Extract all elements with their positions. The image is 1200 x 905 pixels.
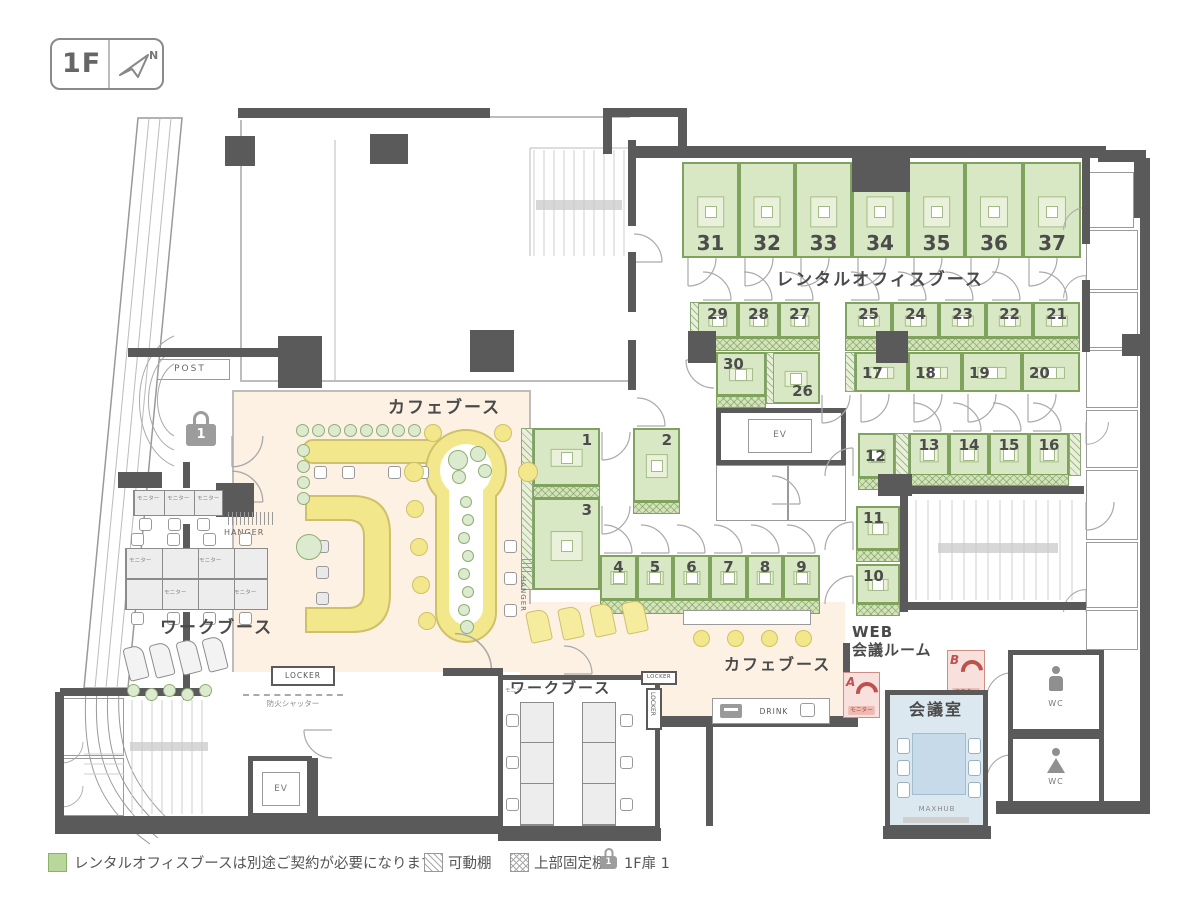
phone-a-monitor: モニター [848,706,874,715]
rental-booth-32: 32 [739,162,795,258]
maxhub-label: MAXHUB [898,806,976,813]
legend-movable-shelf-swatch [424,853,443,872]
legend-fixed-shelf-label: 上部固定棚 [534,857,607,872]
rental-booth-30: 30 [716,352,766,396]
elevator-1-label: EV [748,431,812,440]
rental-booth-36: 36 [965,162,1023,258]
drink-label: DRINK [752,708,796,716]
legend-movable-shelf-label: 可動棚 [448,857,492,872]
door-lock-icon: 1 [186,424,216,446]
kettle-icon [800,703,815,717]
rental-booth-9: 9 [783,555,820,600]
rental-booth-35: 35 [908,162,965,258]
fire-shutter-label: 防火シャッター [243,700,343,708]
post-label: POST [150,365,230,374]
wc-male-room [1008,650,1104,734]
rental-booth-20: 20 [1022,352,1080,392]
web-meeting-label-2: 会議ルーム [852,643,932,658]
work-2-label: ワークブース [510,681,611,696]
locker-label: LOCKER [271,672,335,680]
locker-label-2: LOCKER [643,674,675,679]
elevator-2-label: EV [262,785,300,794]
rental-booth-16: 16 [1029,433,1069,476]
cafe-1-label: カフェブース [388,400,501,417]
floor-plan: 1F N 1 2 3 4 5 6 7 8 9 10 11 12 13 14 15… [0,0,1200,905]
rental-booth-5: 5 [637,555,673,600]
hanger-label-2: HANGER [519,576,526,612]
rental-booth-13: 13 [909,433,949,476]
rental-booth-18: 18 [908,352,962,392]
rental-booth-8: 8 [747,555,783,600]
phone-room-b-label: B [950,654,959,666]
rental-booth-22: 22 [986,302,1033,338]
rental-office-label: レンタルオフィスブース [775,272,985,289]
north-label: N [149,49,158,62]
printer-icon [720,704,742,718]
rental-booth-28: 28 [738,302,779,338]
rental-booth-23: 23 [939,302,986,338]
legend-rental-swatch [48,853,67,872]
rental-booth-12: 12 [858,433,895,478]
rental-booth-26: 26 [772,352,820,404]
rental-booth-11: 11 [856,506,900,550]
rental-booth-2: 2 [633,428,680,502]
rental-booth-33: 33 [795,162,852,258]
wc-male-label: WC [1008,700,1104,708]
web-meeting-label-1: WEB [852,625,893,640]
cafe-2-label: カフェブース [724,657,831,673]
legend-fixed-shelf-swatch [510,853,529,872]
rental-booth-14: 14 [949,433,989,476]
floor-label: 1F [62,50,101,77]
badge-divider [108,40,110,88]
legend-lock-icon: 1 [600,856,617,869]
rental-booth-19: 19 [962,352,1022,392]
hanger-rack [228,512,274,525]
rental-booth-31: 31 [682,162,739,258]
rental-booth-3: 3 [533,498,600,590]
legend-rental-note: レンタルオフィスブースは別途ご契約が必要になります。 [74,857,449,872]
staircase-right [916,500,1072,600]
female-icon [1052,748,1060,756]
male-icon [1052,666,1060,674]
wc-female-label: WC [1008,778,1104,786]
rental-booth-21: 21 [1033,302,1080,338]
rental-booth-27: 27 [779,302,820,338]
legend-door-label: 1F扉 1 [624,857,670,872]
rental-booth-1: 1 [533,428,600,486]
work-1-label: ワークブース [160,620,273,637]
phone-room-a-label: A [846,676,855,688]
rental-booth-10: 10 [856,564,900,604]
rental-booth-4: 4 [600,555,637,600]
meeting-room-label: 会議室 [890,702,982,718]
locker-label-3: LOCKER [649,692,655,716]
rental-booth-15: 15 [989,433,1029,476]
rental-booth-37: 37 [1023,162,1081,258]
hanger-rack-2 [521,556,532,572]
rental-booth-6: 6 [673,555,710,600]
staircase-top [530,148,628,256]
compass-icon: N [113,44,161,86]
rental-booth-7: 7 [710,555,747,600]
fire-shutter-line [243,694,343,696]
